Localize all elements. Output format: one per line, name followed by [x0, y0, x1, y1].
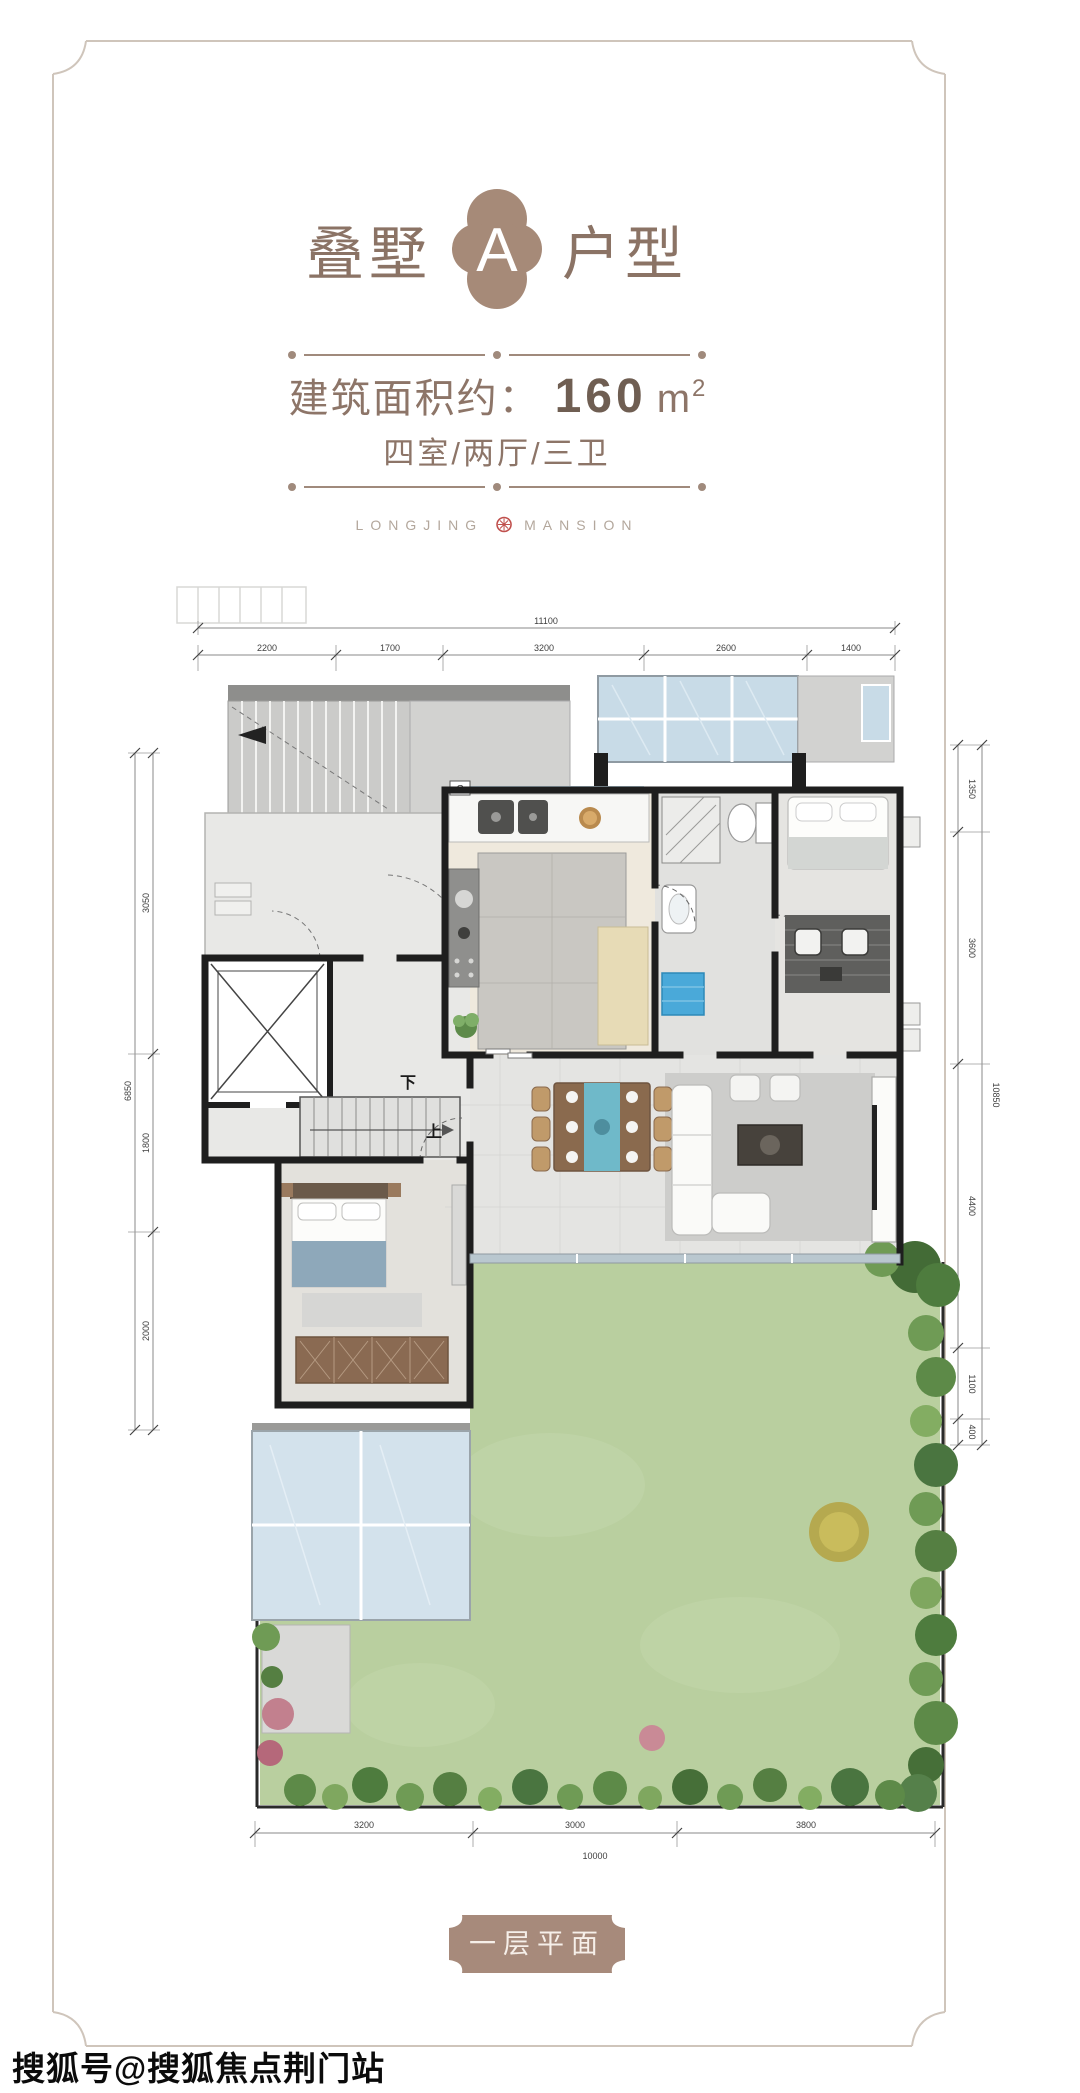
ac-unit: [902, 817, 920, 847]
pantry-cabinet: [598, 927, 648, 1045]
dim-label: 11100: [534, 616, 558, 626]
area-line: 建筑面积约： 160 m 2: [289, 366, 706, 424]
ac-unit: [902, 1029, 920, 1051]
dim-label: 3800: [796, 1820, 816, 1830]
plaque-label: 一层平面: [469, 1929, 605, 1959]
nightstand: [280, 1183, 293, 1197]
tv: [872, 1105, 877, 1210]
type-badge: A: [452, 186, 542, 312]
plan-plaque: 一层平面: [448, 1914, 626, 1974]
skylight-glass: [594, 676, 894, 790]
dim-label: 1100: [967, 1374, 977, 1393]
divider-dot: [698, 351, 706, 359]
brand-left: LONGJING: [356, 517, 484, 533]
frame-corner-bl: [53, 2012, 86, 2046]
watermark: 搜狐号@搜狐焦点荆门站: [12, 2042, 385, 2090]
pink-shrub: [262, 1698, 294, 1730]
dim-label: 3050: [141, 893, 151, 913]
glass-patio: [252, 1423, 470, 1620]
nightstand: [388, 1183, 401, 1197]
bedroom-console: [452, 1185, 466, 1285]
rooms-line: 四室/两厅/三卫: [383, 428, 610, 473]
divider-line: [304, 486, 485, 488]
dim-label: 1800: [141, 1133, 151, 1153]
toilet: [728, 804, 756, 842]
upper-stair-ghost: [177, 587, 306, 623]
bedroom-rug: [302, 1293, 422, 1327]
dim-label: 2200: [257, 643, 277, 653]
dim-bottom: 3200 3000 3800 10000: [250, 1820, 940, 1861]
divider-dot: [288, 351, 296, 359]
dining-chair: [654, 1087, 672, 1111]
dim-label: 1700: [380, 643, 400, 653]
pink-shrub: [639, 1725, 665, 1751]
divider: [288, 351, 706, 359]
armchair: [730, 1075, 760, 1101]
blanket: [292, 1241, 386, 1287]
dim-label: 3200: [354, 1820, 374, 1830]
armchair: [842, 929, 868, 955]
area-superscript: 2: [692, 375, 705, 403]
title-right: 户型: [562, 207, 688, 291]
title-left: 叠墅: [306, 207, 432, 291]
area-label: 建筑面积约：: [289, 366, 541, 424]
dining-chair: [532, 1147, 550, 1171]
dim-top: 11100 2200 1700 3200 2600 1400: [193, 616, 900, 671]
frame-corner-tl: [53, 41, 86, 74]
dim-label: 4400: [967, 1196, 977, 1216]
floor-plan: 11100 2200 1700 3200 2600 1400 3050 1800…: [120, 585, 1000, 1885]
stair-label-up: 上: [426, 1123, 442, 1141]
dim-label: 10850: [991, 1082, 1000, 1107]
stair-label-down: 下: [400, 1075, 416, 1092]
dim-label: 3000: [565, 1820, 585, 1830]
area-unit: m: [657, 377, 690, 422]
dim-label: 3200: [534, 643, 554, 653]
armchair: [795, 929, 821, 955]
blue-mat: [662, 973, 704, 1015]
dining-chair: [532, 1117, 550, 1141]
frame-corner-tr: [912, 41, 945, 74]
divider-line: [304, 354, 485, 356]
divider-line: [509, 354, 690, 356]
divider-dot: [288, 483, 296, 491]
dining-chair: [654, 1117, 672, 1141]
area-value: 160: [555, 369, 647, 424]
dim-label: 3600: [967, 938, 977, 958]
dim-right: 1350 3600 4400 1100 400 10850: [950, 740, 1000, 1450]
dim-label: 2600: [716, 643, 736, 653]
divider-dot: [493, 483, 501, 491]
dining-chair: [532, 1087, 550, 1111]
dim-label: 10000: [582, 1851, 607, 1861]
sofa: [672, 1085, 712, 1235]
armchair: [770, 1075, 800, 1101]
divider-line: [509, 486, 690, 488]
dim-label: 1350: [967, 779, 977, 799]
headboard: [290, 1183, 388, 1199]
kitchen: C: [449, 781, 649, 1049]
dining-chair: [654, 1147, 672, 1171]
brand-line: LONGJING MANSION: [356, 516, 639, 533]
chaise: [712, 1193, 770, 1233]
title-row: 叠墅 A 户型: [306, 186, 688, 312]
frame-corner-br: [912, 2012, 945, 2046]
dim-label: 400: [967, 1424, 977, 1439]
divider: [288, 483, 706, 491]
dim-left: 3050 1800 2000 6850: [123, 748, 160, 1435]
flyer-page: 叠墅 A 户型 建筑面积约： 160 m 2: [0, 0, 1080, 2093]
elevator: [205, 958, 330, 1108]
dim-label: 2000: [141, 1321, 151, 1341]
brand-right: MANSION: [524, 517, 638, 533]
dim-label: 1400: [841, 643, 861, 653]
divider-dot: [698, 483, 706, 491]
divider-dot: [493, 351, 501, 359]
quatrefoil-badge-icon: A: [452, 186, 542, 312]
badge-letter: A: [476, 216, 518, 285]
brand-seal-icon: [495, 516, 512, 533]
entry-patio: [205, 813, 470, 960]
dim-label: 6850: [123, 1081, 133, 1101]
ac-unit: [902, 1003, 920, 1025]
